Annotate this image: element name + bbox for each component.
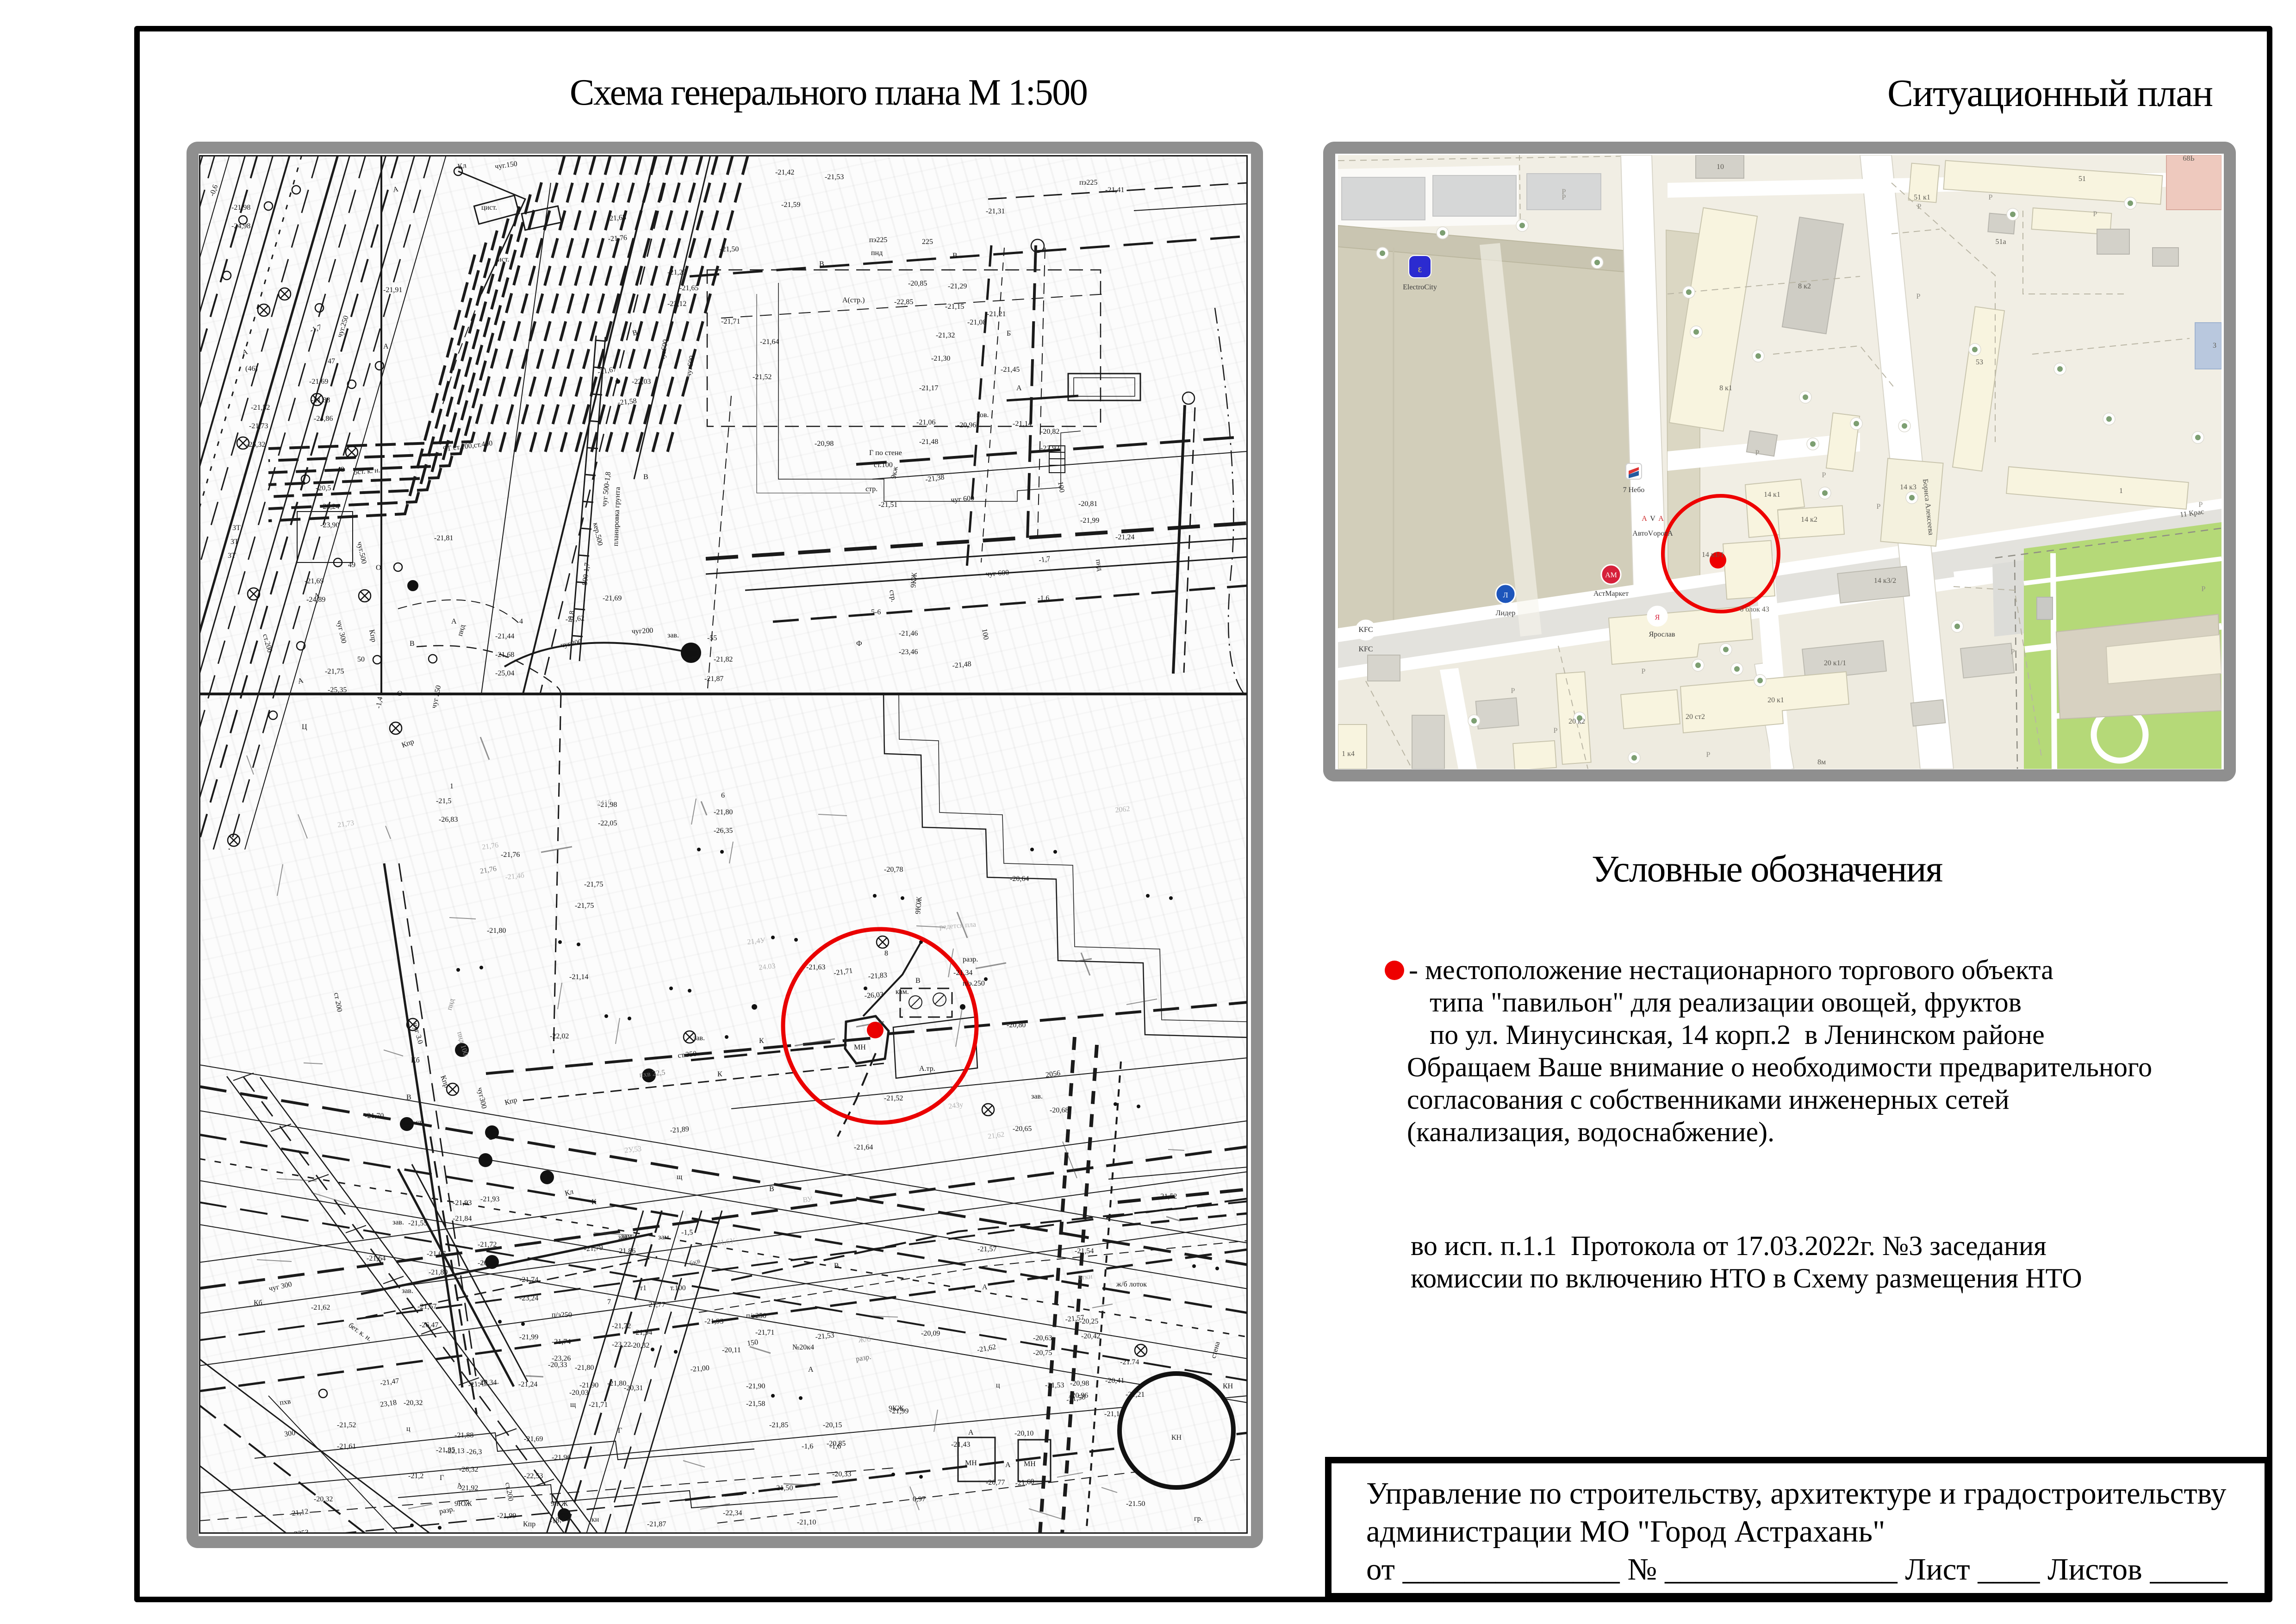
svg-text:А(стр.): А(стр.)	[842, 296, 865, 304]
svg-text:-21,24: -21,24	[1115, 533, 1134, 541]
svg-text:КН: КН	[1171, 1434, 1182, 1442]
svg-text:2062: 2062	[1115, 805, 1131, 814]
svg-text:Кб: Кб	[411, 1056, 420, 1064]
svg-text:-21,42: -21,42	[775, 169, 794, 176]
svg-text:-21,5: -21,5	[436, 797, 451, 805]
svg-text:ист.: ист.	[498, 256, 509, 263]
svg-text:зав.: зав.	[667, 631, 679, 639]
svg-text:стр.: стр.	[865, 485, 877, 493]
svg-text:-21,67: -21,67	[417, 1303, 436, 1311]
svg-text:-20,31: -20,31	[624, 1384, 643, 1392]
svg-text:-22,03: -22,03	[632, 378, 651, 386]
svg-text:-21,93: -21,93	[480, 1195, 499, 1203]
svg-text:-21,69: -21,69	[305, 577, 324, 585]
svg-text:-20,80: -20,80	[1007, 1021, 1026, 1029]
svg-text:-21,65: -21,65	[607, 213, 626, 223]
svg-text:-21,73: -21,73	[249, 422, 268, 430]
svg-text:3Т: 3Т	[232, 524, 241, 532]
svg-text:зав.: зав.	[402, 1287, 413, 1295]
svg-text:14 к3: 14 к3	[1900, 483, 1916, 491]
svg-text:-21,14: -21,14	[569, 973, 588, 981]
svg-text:АвтоVоротА: АвтоVоротА	[1632, 530, 1673, 537]
svg-text:-21,93: -21,93	[453, 1199, 472, 1207]
svg-text:20 к1/1: 20 к1/1	[1824, 659, 1846, 667]
svg-text:А: А	[808, 1366, 814, 1374]
svg-text:-21,52: -21,52	[1158, 1193, 1177, 1200]
svg-text:В: В	[410, 640, 415, 648]
svg-text:2416: 2416	[597, 798, 612, 807]
svg-text:-21,29: -21,29	[948, 282, 967, 290]
svg-text:цист.: цист.	[481, 204, 497, 212]
svg-text:9КЖ: 9КЖ	[889, 1405, 904, 1412]
svg-text:6: 6	[721, 792, 725, 800]
svg-text:Р: Р	[1554, 727, 1558, 735]
svg-text:щ: щ	[570, 1401, 576, 1409]
svg-text:ВУ: ВУ	[803, 1195, 813, 1204]
svg-text:К: К	[717, 1070, 722, 1078]
svg-text:-22,85: -22,85	[894, 298, 913, 306]
svg-text:п/э.250: п/э.250	[963, 980, 985, 987]
svg-text:зав.: зав.	[693, 1034, 705, 1042]
svg-text:-21,58: -21,58	[746, 1400, 765, 1408]
svg-text:-24,89: -24,89	[306, 596, 325, 604]
svg-text:-21.50: -21.50	[1126, 1500, 1145, 1508]
svg-text:51 к1: 51 к1	[1914, 194, 1930, 201]
svg-text:300: 300	[284, 1429, 296, 1438]
svg-text:ков.: ков.	[977, 411, 989, 419]
svg-text:-21,52: -21,52	[884, 1094, 903, 1102]
svg-text:-24,98: -24,98	[231, 222, 250, 230]
svg-text:V: V	[1650, 515, 1655, 523]
svg-text:-21,46: -21,46	[899, 630, 918, 637]
svg-text:чуг 600: чуг 600	[985, 569, 1009, 578]
svg-text:1 к4: 1 к4	[1342, 750, 1355, 758]
svg-text:-23,24: -23,24	[320, 503, 339, 511]
svg-text:кам.: кам.	[896, 988, 909, 996]
svg-text:20 к2: 20 к2	[1568, 718, 1585, 725]
svg-text:-26,35: -26,35	[714, 827, 733, 835]
svg-text:-21,52: -21,52	[251, 404, 270, 412]
svg-text:-22,92: -22,92	[1040, 444, 1059, 452]
svg-text:отки: отки	[1078, 1273, 1093, 1282]
svg-text:Б: Б	[1007, 330, 1011, 337]
svg-text:-20,81: -20,81	[1078, 500, 1097, 508]
svg-text:-21,34: -21,34	[953, 969, 972, 977]
svg-text:-21,88: -21,88	[311, 396, 330, 404]
svg-text:-21,85: -21,85	[769, 1421, 788, 1429]
svg-text:-21,65: -21,65	[679, 284, 698, 292]
svg-text:-21.74: -21.74	[1120, 1358, 1139, 1366]
svg-text:-20,98: -20,98	[1070, 1380, 1089, 1387]
svg-text:-21,50: -21,50	[774, 1484, 793, 1492]
svg-text:Р: Р	[1822, 471, 1826, 479]
svg-text:-25,32: -25,32	[246, 441, 265, 449]
svg-text:49: 49	[348, 561, 355, 569]
svg-text:48: 48	[337, 466, 344, 474]
svg-text:Г по стене: Г по стене	[869, 449, 902, 457]
svg-text:Ɛ: Ɛ	[1418, 266, 1422, 274]
svg-text:-21,74: -21,74	[519, 1276, 538, 1284]
svg-text:Р: Р	[1877, 503, 1881, 511]
svg-text:-21,70: -21,70	[365, 1112, 384, 1120]
svg-text:-21,90: -21,90	[746, 1382, 765, 1390]
svg-text:-20,5: -20,5	[316, 484, 331, 492]
svg-text:-20,96: -20,96	[957, 421, 976, 429]
svg-text:В: В	[769, 1185, 774, 1193]
svg-text:-23,12: -23,12	[667, 300, 686, 308]
svg-text:-21,41: -21,41	[1105, 186, 1124, 194]
svg-text:0,97: 0,97	[913, 1495, 926, 1503]
svg-text:-23,90: -23,90	[320, 521, 339, 529]
svg-text:-21,74: -21,74	[552, 1338, 571, 1346]
svg-text:В: В	[915, 977, 921, 985]
svg-text:А: А	[1005, 1461, 1011, 1469]
svg-text:-21,06: -21,06	[916, 418, 935, 426]
svg-text:-26,03: -26,03	[864, 991, 884, 1000]
svg-text:кн: кн	[591, 1516, 599, 1524]
svg-text:225: 225	[922, 238, 933, 246]
svg-text:-21,71: -21,71	[589, 1401, 608, 1409]
svg-text:-21,96: -21,96	[552, 1454, 571, 1462]
svg-text:-21,13: -21,13	[1104, 1410, 1123, 1418]
svg-text:пэ225: пэ225	[869, 236, 887, 244]
svg-text:-20,65: -20,65	[1013, 1125, 1032, 1133]
svg-text:зав.: зав.	[392, 1218, 404, 1226]
svg-text:150: 150	[747, 1338, 759, 1348]
svg-text:-25,04: -25,04	[495, 669, 514, 677]
svg-text:А.тр.: А.тр.	[919, 1065, 935, 1073]
svg-text:9ЮЖ: 9ЮЖ	[454, 1500, 472, 1508]
svg-text:ц: ц	[406, 1425, 411, 1433]
svg-text:-21,99: -21,99	[497, 1512, 516, 1520]
svg-text:-21,25: -21,25	[667, 269, 686, 276]
svg-text:-1,7: -1,7	[1038, 555, 1051, 564]
svg-text:-26,83: -26,83	[439, 816, 458, 824]
svg-text:-21,31: -21,31	[986, 207, 1005, 215]
svg-text:-20,85: -20,85	[908, 280, 927, 287]
svg-text:-26,47: -26,47	[419, 1321, 438, 1329]
svg-text:МН: МН	[1024, 1460, 1036, 1468]
svg-text:чуг200: чуг200	[631, 627, 653, 636]
svg-text:-21,15: -21,15	[945, 303, 964, 311]
svg-text:В: В	[834, 1262, 839, 1270]
svg-text:-21,68: -21,68	[495, 651, 514, 659]
svg-text:-21,77: -21,77	[646, 1301, 665, 1309]
svg-text:3: 3	[2213, 342, 2216, 350]
svg-text:-20,64: -20,64	[1010, 875, 1029, 883]
svg-text:АМ: АМ	[1605, 571, 1617, 579]
svg-text:9 КЖ: 9 КЖ	[551, 1500, 568, 1508]
svg-text:А: А	[451, 618, 457, 625]
svg-text:53: 53	[1976, 358, 1983, 366]
svg-text:-21,30: -21,30	[931, 355, 950, 362]
svg-text:-21,2: -21,2	[408, 1472, 423, 1480]
svg-text:А: А	[982, 1283, 988, 1291]
svg-text:-21,75: -21,75	[584, 881, 603, 888]
svg-text:-21,17: -21,17	[919, 384, 938, 392]
svg-text:В: В	[819, 260, 824, 268]
svg-text:Кл: Кл	[457, 162, 467, 171]
svg-text:-20,78: -20,78	[884, 866, 903, 874]
svg-text:68Ь: 68Ь	[2183, 155, 2194, 162]
svg-text:-21,69: -21,69	[309, 378, 328, 386]
svg-text:п/э250: п/э250	[552, 1311, 572, 1319]
svg-text:-21,64: -21,64	[760, 338, 779, 346]
svg-text:-21,91: -21,91	[383, 286, 402, 294]
svg-text:КН: КН	[1223, 1382, 1233, 1390]
svg-text:-20,75: -20,75	[1033, 1349, 1052, 1357]
svg-text:Я: Я	[1655, 614, 1660, 622]
svg-text:8: 8	[884, 949, 888, 957]
svg-text:-20,32: -20,32	[630, 1342, 649, 1349]
svg-text:-21,72: -21,72	[478, 1241, 497, 1249]
svg-text:-21,10: -21,10	[797, 1518, 816, 1526]
svg-text:-21,54: -21,54	[1075, 1247, 1094, 1255]
svg-text:Р: Р	[1755, 449, 1760, 457]
svg-text:-21,75: -21,75	[575, 902, 594, 910]
svg-text:-21,24: -21,24	[518, 1380, 537, 1388]
svg-text:-21,63: -21,63	[806, 963, 825, 971]
svg-text:пхв: пхв	[279, 1398, 292, 1407]
svg-text:В: В	[952, 252, 958, 260]
svg-text:зав.: зав.	[1031, 1093, 1043, 1100]
svg-text:14 к1/1: 14 к1/1	[1702, 551, 1724, 559]
svg-text:-20,25: -20,25	[1079, 1318, 1098, 1325]
svg-text:1: 1	[450, 782, 454, 790]
svg-text:-21,99: -21,99	[519, 1333, 538, 1341]
svg-text:14 к2: 14 к2	[1801, 516, 1817, 524]
svg-text:п/э250: п/э250	[746, 1312, 766, 1320]
svg-text:-21,61: -21,61	[337, 1443, 356, 1450]
svg-text:-21,57: -21,57	[977, 1245, 996, 1253]
svg-text:Ц: Ц	[302, 723, 307, 731]
svg-text:К: К	[591, 1198, 597, 1206]
svg-text:Р: Р	[2011, 648, 2015, 656]
svg-text:-21,87: -21,87	[647, 1520, 666, 1528]
svg-text:Р: Р	[2202, 585, 2206, 593]
svg-text:-1,6: -1,6	[1038, 594, 1049, 602]
svg-text:ж/б лоток: ж/б лоток	[1116, 1280, 1147, 1288]
svg-text:A: A	[1642, 515, 1647, 523]
svg-text:пнд: пнд	[871, 249, 883, 257]
svg-text:-21,50: -21,50	[720, 245, 739, 253]
svg-text:5-6: 5-6	[871, 608, 881, 616]
svg-text:8 к2: 8 к2	[1798, 282, 1811, 290]
svg-text:К: К	[759, 1037, 764, 1045]
svg-text:-26,3: -26,3	[467, 1448, 482, 1456]
svg-text:51а: 51а	[1995, 238, 2006, 246]
svg-text:Лидер: Лидер	[1496, 609, 1516, 617]
svg-text:разр.: разр.	[963, 956, 978, 963]
svg-text:4: 4	[519, 618, 523, 625]
svg-text:-21,81: -21,81	[434, 534, 453, 542]
svg-text:-20,82: -20,82	[1040, 428, 1059, 436]
svg-text:-21,14: -21,14	[1013, 420, 1032, 428]
svg-text:т1: т1	[640, 1284, 647, 1292]
svg-text:-21,79: -21,79	[584, 1243, 604, 1253]
svg-text:-21,69: -21,69	[524, 1435, 543, 1443]
svg-text:10: 10	[1717, 163, 1724, 171]
svg-text:О: О	[397, 690, 403, 698]
svg-text:А: А	[968, 1429, 974, 1437]
svg-text:-21,55: -21,55	[408, 1219, 427, 1227]
svg-text:-21,59: -21,59	[781, 201, 800, 209]
svg-text:-21,93: -21,93	[704, 1318, 723, 1325]
svg-text:ElectroCity: ElectroCity	[1403, 283, 1437, 291]
svg-text:-20,77: -20,77	[986, 1479, 1005, 1487]
svg-text:-21,76: -21,76	[608, 234, 627, 243]
svg-text:№20к4: №20к4	[792, 1343, 814, 1351]
svg-text:-21,64: -21,64	[854, 1143, 873, 1151]
svg-text:-22,05: -22,05	[598, 819, 617, 827]
svg-text:-23,24: -23,24	[519, 1294, 538, 1302]
svg-text:8м: 8м	[1817, 758, 1826, 766]
svg-text:-21,00: -21,00	[690, 1364, 710, 1374]
svg-text:-21,69: -21,69	[603, 594, 622, 602]
svg-text:-21,45: -21,45	[1001, 366, 1020, 374]
svg-text:9ЮЖ: 9ЮЖ	[914, 896, 923, 915]
svg-text:т.100: т.100	[670, 1284, 686, 1292]
svg-text:-55: -55	[707, 634, 717, 642]
svg-text:Р: Р	[1511, 687, 1515, 695]
svg-text:-20,15: -20,15	[823, 1421, 842, 1429]
svg-text:-21,71: -21,71	[755, 1329, 774, 1337]
svg-text:-26,28: -26,28	[478, 1259, 497, 1267]
svg-text:-21,82: -21,82	[714, 656, 733, 663]
svg-text:Р: Р	[1562, 188, 1566, 196]
svg-text:Р: Р	[1642, 668, 1646, 675]
svg-text:Р: Р	[2093, 210, 2097, 218]
svg-text:-21,83: -21,83	[868, 971, 887, 981]
svg-text:-21,85: -21,85	[436, 1446, 455, 1454]
svg-text:-21,99: -21,99	[1080, 517, 1099, 525]
svg-text:-20,32: -20,32	[404, 1399, 423, 1407]
svg-text:-21,72: -21,72	[612, 1322, 631, 1330]
svg-text:-21,75: -21,75	[325, 668, 344, 675]
svg-text:-20,03: -20,03	[569, 1389, 588, 1397]
svg-text:ст.100: ст.100	[874, 461, 893, 469]
svg-text:-20,85: -20,85	[827, 1440, 846, 1448]
svg-text:Р: Р	[1989, 194, 1993, 201]
svg-text:Г: Г	[440, 1474, 444, 1482]
svg-text:A: A	[1658, 515, 1664, 523]
svg-text:-20,42: -20,42	[1081, 1332, 1100, 1340]
svg-text:-21,80: -21,80	[714, 808, 733, 816]
svg-text:гр.: гр.	[1194, 1515, 1203, 1523]
svg-text:6 блок 43: 6 блок 43	[1740, 606, 1769, 613]
svg-text:щ: щ	[677, 1173, 682, 1181]
svg-text:Р: Р	[1917, 203, 1922, 211]
svg-text:-21,76: -21,76	[501, 851, 520, 859]
svg-text:АстМаркет: АстМаркет	[1593, 590, 1629, 598]
svg-text:-21,98: -21,98	[231, 204, 250, 212]
svg-text:-21,86: -21,86	[616, 1247, 635, 1255]
svg-text:-21,90: -21,90	[579, 1381, 598, 1389]
svg-text:-21,80: -21,80	[575, 1364, 594, 1372]
svg-text:-21,88: -21,88	[454, 1431, 473, 1439]
svg-text:зам.: зам.	[658, 1233, 671, 1241]
svg-text:-0,8: -0,8	[567, 610, 576, 623]
svg-text:-21,80: -21,80	[487, 927, 506, 935]
svg-text:-20,33: -20,33	[832, 1470, 851, 1478]
svg-text:-21,64: -21,64	[367, 1255, 386, 1262]
svg-text:-21,94: -21,94	[633, 1329, 652, 1337]
svg-text:-20,32: -20,32	[314, 1495, 333, 1503]
svg-text:-22,34: -22,34	[723, 1509, 742, 1517]
svg-text:-24,86: -24,86	[314, 415, 333, 423]
svg-text:-21,32: -21,32	[936, 331, 955, 339]
svg-text:-26,32: -26,32	[459, 1466, 478, 1474]
svg-text:-21,21: -21,21	[1126, 1391, 1145, 1399]
svg-text:А: А	[1016, 384, 1022, 392]
svg-text:А: А	[383, 343, 389, 350]
svg-text:Р: Р	[1706, 751, 1711, 759]
svg-text:-21,44: -21,44	[495, 632, 514, 640]
svg-text:-20,09: -20,09	[921, 1330, 940, 1337]
svg-text:Л: Л	[1503, 592, 1508, 600]
svg-text:-21,71: -21,71	[721, 318, 740, 325]
svg-text:-21,67: -21,67	[427, 1250, 446, 1258]
svg-text:-21,89: -21,89	[670, 1125, 690, 1135]
svg-text:7 Небо: 7 Небо	[1623, 486, 1645, 494]
svg-text:Ж/б: Ж/б	[858, 1336, 871, 1344]
svg-text:3Т: 3Т	[228, 552, 236, 560]
svg-text:-23,46: -23,46	[899, 648, 918, 656]
svg-text:3Т: 3Т	[230, 538, 239, 546]
svg-text:-22,53: -22,53	[524, 1472, 543, 1480]
svg-text:Р: Р	[1916, 293, 1921, 300]
svg-text:14 к1: 14 к1	[1764, 491, 1780, 499]
svg-text:В: В	[406, 1093, 411, 1101]
svg-text:зам.: зам.	[621, 1232, 634, 1240]
svg-text:ц: ц	[996, 1381, 1000, 1389]
svg-text:-1,5: -1,5	[681, 1229, 693, 1237]
svg-text:Кб: Кб	[254, 1299, 262, 1307]
svg-text:-20,98: -20,98	[815, 440, 834, 448]
svg-text:-21,53: -21,53	[1045, 1381, 1064, 1389]
svg-text:-21,48: -21,48	[919, 438, 938, 446]
svg-text:KFC: KFC	[1358, 645, 1373, 653]
svg-text:-21,84: -21,84	[453, 1215, 472, 1223]
svg-text:-21,51: -21,51	[878, 501, 897, 509]
svg-text:-21,21: -21,21	[987, 310, 1006, 318]
svg-text:51: 51	[2078, 175, 2086, 183]
svg-text:7: 7	[607, 1298, 611, 1306]
svg-text:-21,62: -21,62	[311, 1304, 330, 1312]
svg-text:-20,63: -20,63	[1033, 1334, 1052, 1342]
svg-text:-20,68: -20,68	[1050, 1106, 1069, 1114]
svg-text:14 к3/2: 14 к3/2	[1874, 577, 1896, 585]
svg-text:-21,08: -21,08	[967, 319, 986, 326]
svg-text:20 ст2: 20 ст2	[1686, 713, 1705, 721]
svg-text:-21,52: -21,52	[337, 1421, 356, 1429]
svg-text:ст: ст	[416, 1118, 422, 1126]
svg-text:-23,22: -23,22	[612, 1341, 631, 1349]
svg-text:-20,33: -20,33	[548, 1361, 567, 1369]
svg-text:-21,80: -21,80	[429, 1268, 448, 1276]
svg-text:МН: МН	[965, 1459, 977, 1467]
svg-text:(46): (46)	[245, 365, 258, 373]
svg-text:пэ225: пэ225	[1079, 179, 1097, 187]
svg-text:В: В	[643, 473, 648, 481]
svg-text:-22,02: -22,02	[550, 1032, 569, 1040]
svg-text:Кпр: Кпр	[523, 1520, 535, 1528]
svg-text:8 к1: 8 к1	[1719, 384, 1732, 392]
svg-text:МН: МН	[854, 1043, 866, 1051]
svg-text:-21,87: -21,87	[704, 675, 723, 683]
svg-text:KFC: KFC	[1358, 626, 1373, 634]
svg-text:-21,53: -21,53	[825, 173, 844, 181]
